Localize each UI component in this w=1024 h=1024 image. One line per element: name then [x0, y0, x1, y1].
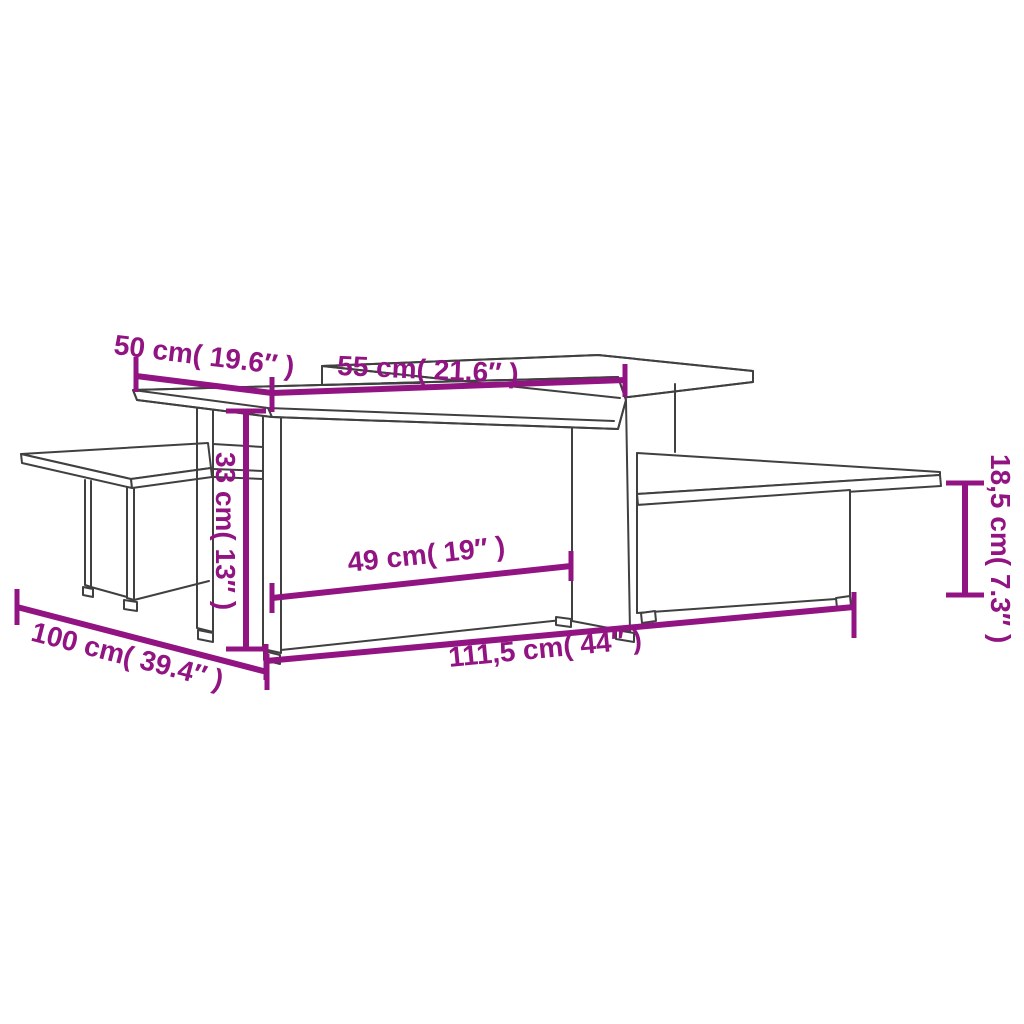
- product-line-drawing: [0, 0, 1024, 1024]
- low-table-right-drawing: [637, 453, 941, 623]
- dimension-label-height-tall: 33 cm( 13″ ): [209, 452, 241, 610]
- dimension-diagram: 50 cm( 19.6″ ) 55 cm( 21.6″ ) 33 cm( 13″…: [0, 0, 1024, 1024]
- dimension-label-height-low: 18,5 cm( 7.3″ ): [984, 454, 1016, 643]
